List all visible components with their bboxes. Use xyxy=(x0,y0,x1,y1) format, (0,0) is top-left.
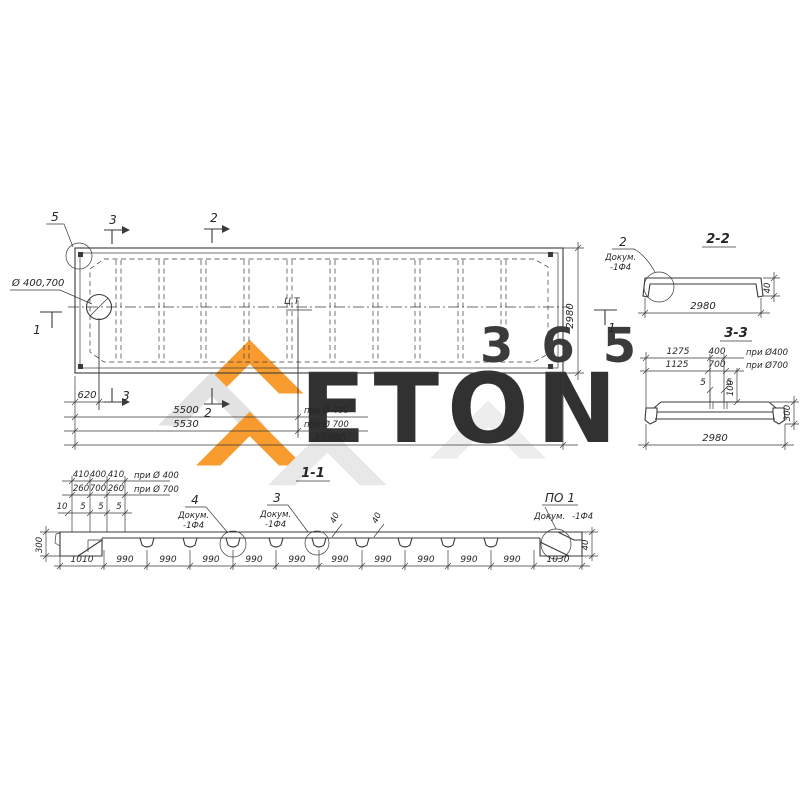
dim-row1-note-s11: при Ø 400 xyxy=(134,470,179,481)
detail-5-number: 5 xyxy=(51,210,59,224)
dim-100: 100 xyxy=(726,380,736,396)
section-2-label: 2 xyxy=(210,211,218,225)
section-2-2-dimensions: 40 2980 xyxy=(638,272,780,318)
watermark-chevron-icon xyxy=(196,412,303,466)
dim-thickness-40: 40 xyxy=(763,283,773,294)
callout-ref: -1Ф4 xyxy=(610,263,631,273)
callout-4-ref: -1Ф4 xyxy=(183,521,204,531)
callout-3-ref: -1Ф4 xyxy=(265,520,286,530)
detail-circle-3 xyxy=(305,531,329,555)
section-2-2-profile xyxy=(643,278,763,297)
dim-11960: 11960 xyxy=(314,433,346,444)
callout-4-number: 4 xyxy=(191,493,199,507)
dim-seg-1: 990 xyxy=(116,555,133,565)
dim-seg-10: 990 xyxy=(503,555,520,565)
dim-row2-note-s11: при Ø 700 xyxy=(134,484,179,495)
dim-300-s11: 300 xyxy=(35,537,45,553)
dim-700: 700 xyxy=(708,360,725,370)
callout-number: 2 xyxy=(619,235,627,249)
section-3-marker-bottom: 3 xyxy=(104,388,130,406)
section-2-2-detail-circle xyxy=(644,272,674,302)
callout-4-doc: Докум. xyxy=(177,511,209,521)
dim-700b: 700 xyxy=(90,484,106,494)
callout-4: 4 Докум. -1Ф4 xyxy=(177,493,228,533)
watermark: ETON 365 xyxy=(158,318,664,485)
dim-1275: 1275 xyxy=(667,347,690,357)
dim-5b: 5 xyxy=(98,502,103,512)
section-3-label: 3 xyxy=(109,213,117,227)
dim-seg-4: 990 xyxy=(245,555,262,565)
cg-label: Ц.Т xyxy=(284,297,301,307)
dim-2980-plan: 2980 xyxy=(565,303,576,328)
dim-5a: 5 xyxy=(80,502,85,512)
dim-620: 620 xyxy=(77,390,96,401)
dim-seg-11: 1030 xyxy=(547,555,570,565)
detail-5-callout: 5 xyxy=(46,210,92,269)
dim-row2-note: при Ø700 xyxy=(746,360,788,371)
technical-drawing-canvas: ETON 365 Ø 400,700 Ц.Т 5 xyxy=(0,0,800,800)
dim-seg-2: 990 xyxy=(159,555,176,565)
callout-3-number: 3 xyxy=(273,491,281,505)
section-1-1-title: 1-1 xyxy=(301,466,325,481)
section-1-label: 1 xyxy=(608,321,616,335)
dim-5530: 5530 xyxy=(173,419,198,430)
dim-thk-1: 40 xyxy=(328,511,342,525)
dim-5c: 5 xyxy=(116,502,121,512)
dim-410c: 410 xyxy=(108,470,124,480)
dim-300-s33: 300 xyxy=(783,405,793,421)
callout-3: 3 Докум. -1Ф4 xyxy=(259,491,308,532)
dim-seg-5: 990 xyxy=(288,555,305,565)
callout-po1-ref: -1Ф4 xyxy=(572,512,593,522)
callout-po1-number: ПО 1 xyxy=(545,491,575,505)
dim-row1-note: при Ø400 xyxy=(746,347,788,358)
dim-2980-s22: 2980 xyxy=(690,301,715,312)
dim-seg-6: 990 xyxy=(331,555,348,565)
dim-thk-2: 40 xyxy=(370,511,384,525)
dim-seg-7: 990 xyxy=(374,555,391,565)
callout-po1-doc: Докум. xyxy=(533,512,565,522)
section-2-marker-top: 2 xyxy=(204,211,230,243)
section-3-3-title: 3-3 xyxy=(724,326,748,341)
dim-gap-5a: 5 xyxy=(700,378,706,388)
section-2-2-title: 2-2 xyxy=(706,232,730,247)
dim-260c: 260 xyxy=(108,484,124,494)
dim-5500: 5500 xyxy=(173,405,198,416)
dim-seg-9: 990 xyxy=(460,555,477,565)
section-2-label: 2 xyxy=(204,406,212,420)
hole-diameter-label: Ø 400,700 xyxy=(11,277,64,289)
section-3-label: 3 xyxy=(122,389,130,403)
dim-thk-3: 40 xyxy=(581,540,591,551)
section-1-1-ribs xyxy=(140,538,498,547)
dim-seg-3: 990 xyxy=(202,555,219,565)
dim-5530-note: при Ø 700 xyxy=(304,419,349,430)
panel-rib-lines xyxy=(116,260,506,361)
dim-260a: 260 xyxy=(73,484,89,494)
section-1-1-bottom-dims: 1010 990 990 990 990 990 990 990 990 990… xyxy=(54,550,590,570)
section-1-label: 1 xyxy=(33,323,41,337)
drawing-sheet: ETON 365 Ø 400,700 Ц.Т 5 xyxy=(0,0,800,800)
section-2-2-callout: 2 Докум. -1Ф4 xyxy=(604,235,655,273)
section-3-marker-top: 3 xyxy=(104,213,130,244)
dim-400b: 400 xyxy=(90,470,106,480)
dim-2980-s33: 2980 xyxy=(702,433,727,444)
dim-10: 10 xyxy=(57,502,68,512)
callout-po-1: ПО 1 Докум. -1Ф4 xyxy=(533,491,593,529)
section-1-marker-left: 1 xyxy=(33,312,62,337)
dim-400: 400 xyxy=(708,347,725,357)
dim-seg-8: 990 xyxy=(417,555,434,565)
section-1-1-top-dims: 410 400 410 при Ø 400 260 700 260 при Ø … xyxy=(57,470,179,532)
section-3-3-profile xyxy=(645,402,785,424)
section-1-1: 1-1 300 410 400 410 при Ø 400 xyxy=(35,466,598,570)
dim-410a: 410 xyxy=(73,470,89,480)
dim-5500-note: при Ø 400 xyxy=(304,405,349,416)
callout-3-doc: Докум. xyxy=(259,510,291,520)
section-2-2: 2-2 2 Докум. -1Ф4 40 2980 xyxy=(604,232,780,318)
dim-1125: 1125 xyxy=(666,360,689,370)
dim-seg-0: 1010 xyxy=(71,555,94,565)
callout-doc: Докум. xyxy=(604,253,636,263)
